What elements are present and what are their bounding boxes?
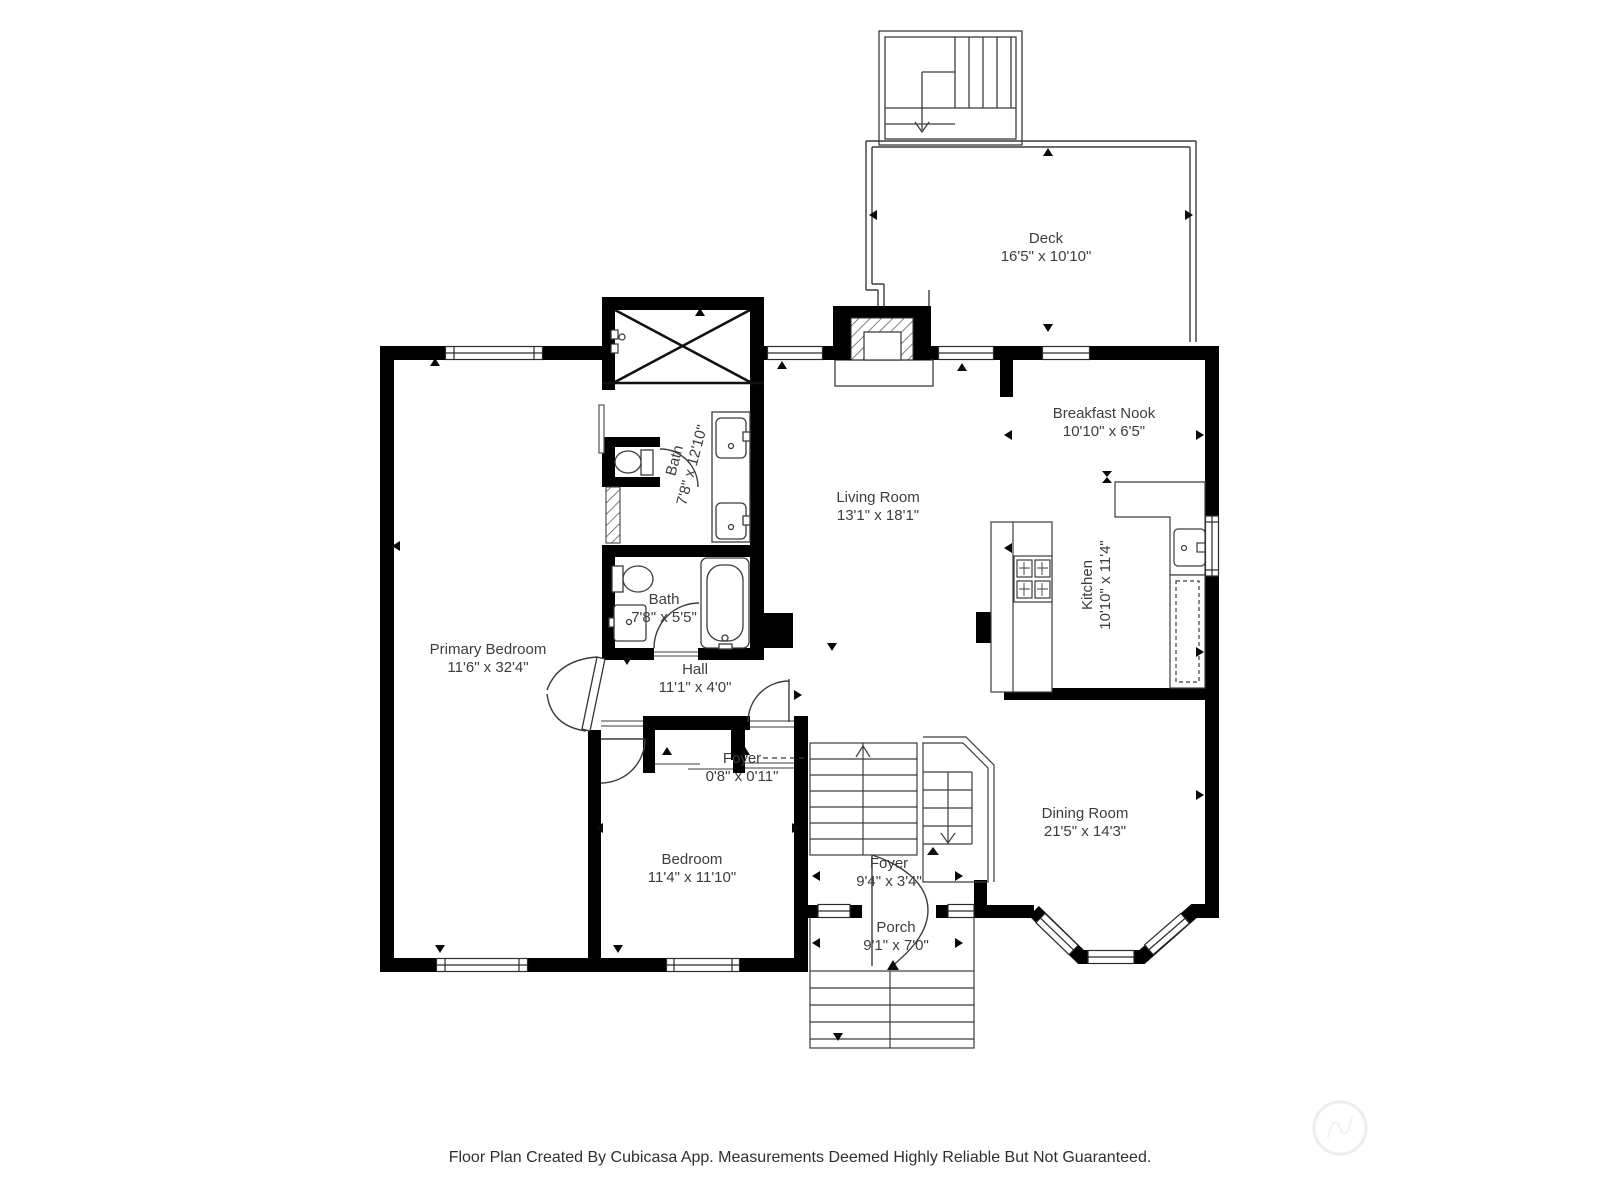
room-label-bath-lower: Bath 7'8" x 5'5"	[631, 591, 697, 627]
room-dims: 7'8" x 5'5"	[631, 609, 697, 627]
kitchen-sink-icon	[1174, 529, 1205, 566]
room-label-porch: Porch 9'1" x 7'0"	[863, 919, 929, 955]
toilet-icon	[615, 450, 653, 475]
stove-icon	[1014, 556, 1052, 602]
bedroom-door	[601, 739, 645, 783]
room-label-foyer-small: Foyer 0'8" x 0'11"	[706, 750, 779, 786]
room-name: Dining Room	[1042, 805, 1129, 823]
window	[939, 347, 994, 360]
room-dims: 11'1" x 4'0"	[659, 679, 732, 697]
footer-disclaimer: Floor Plan Created By Cubicasa App. Meas…	[449, 1149, 1152, 1167]
room-name: Breakfast Nook	[1053, 405, 1156, 423]
room-name: Deck	[1001, 230, 1092, 248]
toilet-icon	[612, 566, 653, 592]
primary-bedroom-double-door	[547, 657, 605, 731]
room-label-foyer: Foyer 9'4" x 3'4"	[856, 855, 922, 891]
room-dims: 10'10" x 11'4"	[1097, 540, 1115, 630]
room-name: Living Room	[836, 489, 919, 507]
room-name: Porch	[863, 919, 929, 937]
window	[818, 905, 850, 918]
watermark-logo-icon	[1314, 1102, 1366, 1154]
dishwasher	[1170, 575, 1205, 688]
room-label-dining-room: Dining Room 21'5" x 14'3"	[1042, 805, 1129, 841]
room-name: Bedroom	[648, 851, 736, 869]
window	[1145, 913, 1190, 954]
room-name: Bath	[631, 591, 697, 609]
window	[1206, 516, 1219, 576]
room-label-kitchen: Kitchen 10'10" x 11'4"	[1079, 540, 1115, 630]
floor-plan-page: Deck 16'5" x 10'10" Breakfast Nook 10'10…	[0, 0, 1600, 1200]
room-dims: 21'5" x 14'3"	[1042, 823, 1129, 841]
room-dims: 16'5" x 10'10"	[1001, 248, 1092, 266]
hall-living-door	[748, 679, 789, 722]
walls	[380, 297, 1219, 972]
window	[768, 347, 823, 360]
window	[1036, 913, 1078, 954]
room-label-breakfast-nook: Breakfast Nook 10'10" x 6'5"	[1053, 405, 1156, 441]
room-dims: 9'4" x 3'4"	[856, 873, 922, 891]
fireplace	[833, 306, 933, 386]
sink-icon	[716, 503, 746, 539]
window	[446, 347, 543, 360]
sink-icon	[716, 418, 746, 458]
window	[1043, 347, 1090, 360]
shower	[602, 310, 764, 383]
room-label-living-room: Living Room 13'1" x 18'1"	[836, 489, 919, 525]
room-name: Kitchen	[1079, 540, 1097, 630]
room-dims: 13'1" x 18'1"	[836, 507, 919, 525]
window	[667, 959, 740, 972]
room-name: Foyer	[706, 750, 779, 768]
room-dims: 0'8" x 0'11"	[706, 768, 779, 786]
room-label-primary-bedroom: Primary Bedroom 11'6" x 32'4"	[430, 641, 547, 677]
room-name: Hall	[659, 661, 732, 679]
bathtub-icon	[701, 558, 749, 649]
deck-stairs	[879, 31, 1022, 145]
room-dims: 10'10" x 6'5"	[1053, 423, 1156, 441]
window	[437, 959, 528, 972]
room-dims: 11'6" x 32'4"	[430, 659, 547, 677]
room-label-hall: Hall 11'1" x 4'0"	[659, 661, 732, 697]
room-dims: 9'1" x 7'0"	[863, 937, 929, 955]
window	[948, 905, 974, 918]
floor-plan-drawing	[0, 0, 1600, 1200]
kitchen-counter-left	[991, 522, 1052, 692]
room-dims: 11'4" x 11'10"	[648, 869, 736, 887]
room-name: Foyer	[856, 855, 922, 873]
room-name: Primary Bedroom	[430, 641, 547, 659]
room-label-deck: Deck 16'5" x 10'10"	[1001, 230, 1092, 266]
window	[1088, 951, 1134, 964]
room-label-bedroom: Bedroom 11'4" x 11'10"	[648, 851, 736, 887]
